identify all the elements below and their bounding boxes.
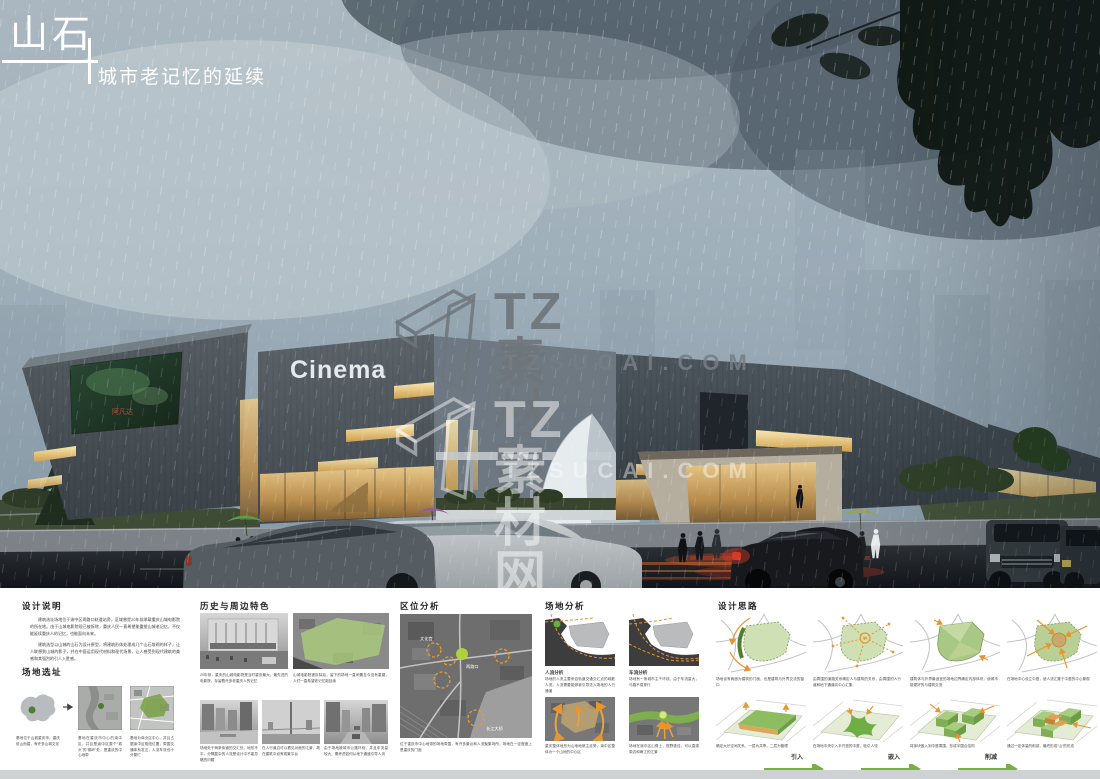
- pedestrian-flow-diagram: [545, 614, 615, 666]
- pedestrian-flow-caption: 场地的人流主要来自轨道交通交汇点的疏散人流，人流需要能够被引导进入场地的人行通道: [545, 677, 615, 694]
- concept-caption: 建筑体与外界最适宜的场地边界确定内部体块，使城市能更好的与建筑交流: [910, 677, 998, 689]
- concept-diagram-atrium: [1007, 612, 1097, 674]
- concept-caption: 场地设有两面为建筑的门面，也是建筑与外界交流的窗口: [716, 677, 804, 689]
- site-selection-heading: 场地选址: [22, 666, 62, 678]
- history-caption: 20年前，重庆的山城电影院是当时重庆最大、最先进的电影院，存留着许多老重庆人的记…: [200, 673, 288, 685]
- location-satellite-map: 文化宫 两路口 长江大桥: [400, 614, 532, 738]
- map-label: 长江大桥: [486, 725, 504, 732]
- location-caption: 位于重庆市中心地带的场地周围，有许多景点和人流聚集场所，场地在一定程度上是重庆的…: [400, 742, 532, 754]
- concept-caption: 将体块嵌入到中庭周围，形成半围合结构: [910, 744, 998, 750]
- site-selection-caption: 基地位于山城重庆市，重庆依山而建，有许多山城文化: [16, 736, 60, 748]
- concept-axon-carve: [1007, 698, 1097, 742]
- poster-subtitle: 城市老记忆的延续: [98, 62, 266, 89]
- concept-diagram-facade: [716, 612, 806, 674]
- concept-diagram-access: [813, 612, 903, 674]
- concept-diagram-massing: [910, 612, 1000, 674]
- old-cinema-photo: [200, 613, 288, 669]
- concept-caption: 在场地中央引入半开放的中庭，吸引人流: [813, 744, 901, 750]
- concept-axon-courtyard: [813, 698, 903, 742]
- presentation-board: 阿凡达 Cinema: [0, 0, 1100, 779]
- site-aerial-photo-green-overlay: [293, 613, 389, 669]
- terrain-analysis-aerial: [545, 697, 615, 741]
- traffic-flow-diagram: [629, 614, 699, 666]
- site-context-map-thumbnail: [130, 686, 174, 730]
- history-caption: 由于场地被城市公路环绕，并且车流量较大，需考虑如何从地下通道引导人流: [324, 746, 388, 758]
- right-vignette: [880, 0, 1100, 590]
- step-label: 引入: [762, 752, 832, 761]
- site-selection-caption: 基地在重庆市中心的渝中区，并且是渝中区整个“城头”的“鹅岭”处，是重庆的中心地带: [78, 736, 122, 759]
- concept-caption: 确定大厅空间关系，一层为共享，二层为管理: [716, 744, 804, 750]
- history-caption: 山城电影院被拆除后，留下的场地一直闲置至今没有重建，人们一直希望老记忆能延续: [293, 673, 389, 685]
- title-rule: [2, 60, 98, 63]
- concept-heading: 设计思路: [718, 600, 758, 612]
- arrow-icon: [62, 702, 76, 712]
- concept-axon-blocks: [910, 698, 1000, 742]
- title-vbar: [88, 38, 91, 84]
- map-label: 两路口: [466, 663, 479, 670]
- concept-caption: 由周围的道路关系确定人与建筑的关系，由周围的人行道和地下通道向中心汇集: [813, 677, 901, 689]
- concept-caption: 在场地中心设立中庭，使人流汇集于中庭的中心景观: [1007, 677, 1095, 683]
- pedestrian-flow-label: 人流分析: [545, 670, 563, 676]
- street-photo-1: [200, 700, 258, 744]
- map-label: 文化宫: [420, 635, 433, 642]
- concept-axon-slab: [716, 698, 806, 742]
- design-notes-text: 建筑选址场地位于渝中区两路口轨道站旁，区域曾是20年前承载重庆山城电影院的所在地…: [30, 616, 180, 666]
- traffic-flow-label: 车流分析: [629, 670, 647, 676]
- history-heading: 历史与周边特色: [200, 600, 270, 612]
- site-analysis-heading: 场地分析: [545, 600, 585, 612]
- history-caption: 场地处于两条街道的交汇处，地形不平，分隔复杂的人流是设计中不能忽略的问题: [200, 746, 258, 763]
- street-photo-2: [262, 700, 320, 744]
- step-label: 嵌入: [859, 752, 929, 761]
- terrain-caption: 重庆整体地形为山地地貌主走势，渝中区整体为一个山地的中心区: [545, 744, 615, 756]
- view-analysis-aerial: [629, 697, 699, 741]
- history-caption: 在人行道边可以看见对面的江景，故在建筑中设有观景平台: [262, 746, 320, 758]
- design-paragraph: 建筑选址场地位于渝中区两路口轨道站旁，区域曾是20年前承载重庆山城电影院的所在地…: [30, 616, 180, 637]
- traffic-flow-caption: 场地有一条城市主干环线，由于车流量大，马路不易穿行: [629, 677, 699, 689]
- title-block: 山石 城市老记忆的延续: [10, 16, 94, 54]
- location-analysis-heading: 区位分析: [400, 600, 440, 612]
- site-selection-caption: 基地为商业区中心，并且占据渝中区枢纽位置，周围交通体系发达，人流车流也十分繁忙: [130, 736, 174, 759]
- design-notes-heading: 设计说明: [22, 600, 62, 612]
- analysis-board: 设计说明 建筑选址场地位于渝中区两路口轨道站旁，区域曾是20年前承载重庆山城电影…: [0, 588, 1100, 779]
- chongqing-map-thumbnail: [16, 686, 60, 730]
- step-label: 削减: [956, 752, 1026, 761]
- board-bottom-strip: [0, 770, 1100, 779]
- poster-title-main: 山石: [10, 16, 94, 54]
- street-photo-3: [324, 700, 388, 744]
- yuzhong-district-map-thumbnail: [78, 686, 122, 730]
- view-caption: 场地在渝中区山脊上，视野极佳，可以直观周边和两江的江景: [629, 744, 699, 756]
- design-paragraph: 建筑选型以山城的山石为设计原型，将建筑形体处理成几个山石堆砌的样子，让人联想到山…: [30, 641, 180, 662]
- concept-caption: 通过一定体量的削减，最终形成“山”的形态: [1007, 744, 1095, 750]
